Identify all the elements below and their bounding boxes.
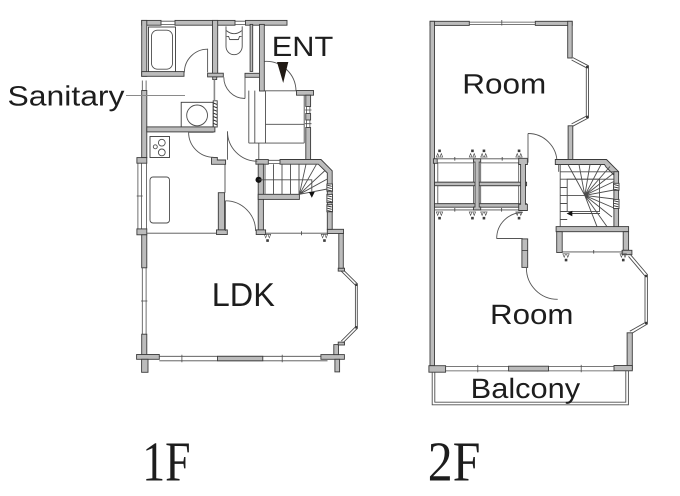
svg-text:Room: Room xyxy=(462,69,546,100)
svg-text:2F: 2F xyxy=(428,432,481,494)
svg-text:Sanitary: Sanitary xyxy=(8,80,125,111)
svg-text:Balcony: Balcony xyxy=(471,373,581,404)
svg-text:ENT: ENT xyxy=(272,31,334,62)
svg-text:Room: Room xyxy=(490,299,574,330)
svg-text:LDK: LDK xyxy=(212,276,275,313)
svg-text:1F: 1F xyxy=(142,432,190,494)
